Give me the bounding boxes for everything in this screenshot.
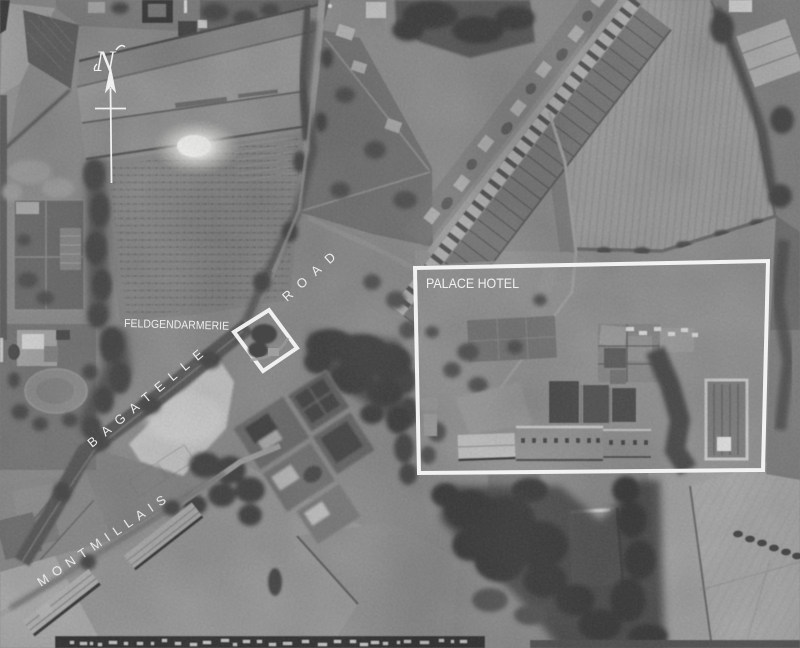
svg-text:N: N (94, 45, 117, 78)
svg-text:PALACE HOTEL: PALACE HOTEL (426, 275, 519, 291)
